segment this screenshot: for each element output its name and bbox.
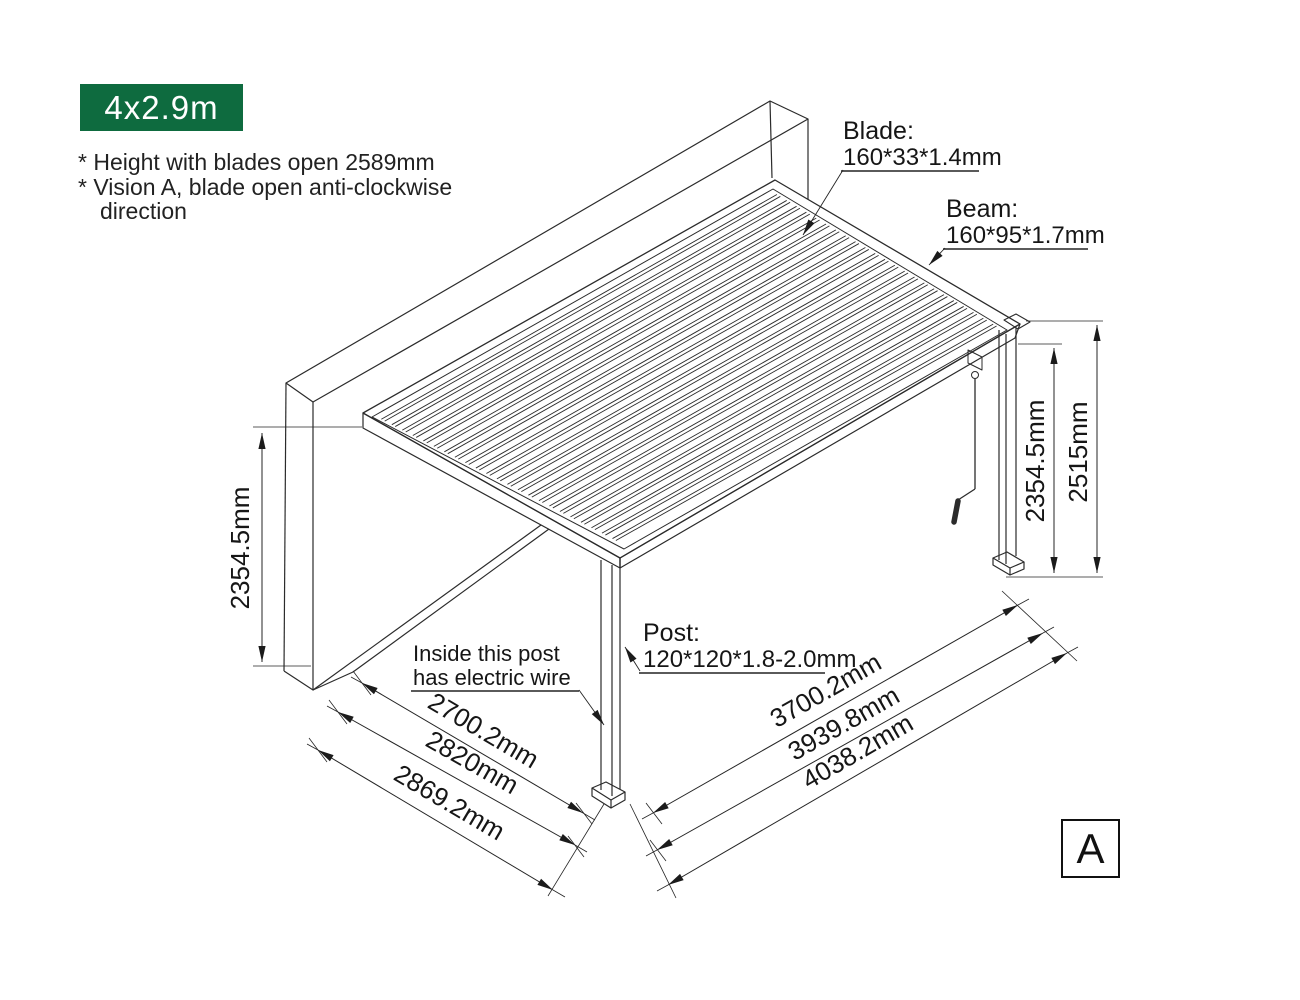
dim-line-depth-mid bbox=[338, 712, 575, 845]
front-beam-face bbox=[620, 324, 1020, 568]
foot-extension-left bbox=[548, 804, 604, 896]
post-leader bbox=[625, 647, 640, 671]
electric-wire-note-line1: Inside this post bbox=[413, 641, 560, 666]
louver-blade-line bbox=[385, 196, 781, 421]
louver-blade-line bbox=[616, 326, 997, 540]
louver-blade-line bbox=[444, 230, 836, 452]
louver-blade-line bbox=[476, 248, 865, 469]
louver-blade-line bbox=[497, 259, 885, 479]
louver-blade-line bbox=[612, 324, 993, 538]
louver-blade-line bbox=[486, 253, 875, 473]
wall bbox=[284, 101, 808, 690]
louver-blade-line bbox=[602, 318, 983, 533]
blade-callout-spec: 160*33*1.4mm bbox=[843, 144, 1002, 171]
louver-blade-line bbox=[392, 200, 787, 424]
dim-total-height: 2515mm bbox=[1063, 401, 1093, 502]
louver-blade-line bbox=[413, 212, 807, 435]
louver-blade-line bbox=[490, 255, 879, 475]
electric-wire-note-line2: has electric wire bbox=[413, 665, 571, 690]
electric-leader bbox=[579, 690, 604, 725]
louver-blade-line bbox=[458, 238, 849, 459]
louver-blade-line bbox=[434, 224, 826, 446]
dim-post-height: 2354.5mm bbox=[1020, 400, 1050, 523]
drawing-texts: Blade: 160*33*1.4mm Beam: 160*95*1.7mm P… bbox=[225, 117, 1105, 846]
louver-blade-line bbox=[402, 206, 796, 430]
post-callout-spec: 120*120*1.8-2.0mm bbox=[643, 646, 856, 673]
louver-blade-line bbox=[469, 244, 859, 465]
post-callout-title: Post: bbox=[643, 619, 700, 647]
louver-blade-line bbox=[455, 236, 846, 457]
wall-left-cap bbox=[284, 402, 313, 690]
louver-blade-line bbox=[465, 242, 855, 463]
louver-blade-line bbox=[479, 249, 868, 470]
blade-callout-title: Blade: bbox=[843, 117, 914, 145]
right-post-foot bbox=[993, 552, 1024, 568]
beam-callout-spec: 160*95*1.7mm bbox=[946, 222, 1105, 249]
leader-lines bbox=[579, 170, 945, 725]
louver-blade-line bbox=[395, 202, 790, 426]
wall-top-face bbox=[286, 101, 808, 402]
beam-callout-title: Beam: bbox=[946, 195, 1018, 223]
dim-wall-height: 2354.5mm bbox=[225, 487, 255, 610]
view-marker-box: A bbox=[1061, 819, 1120, 878]
dim-line-width-inner bbox=[653, 605, 1018, 813]
louver-blade-line bbox=[448, 232, 840, 454]
louver-blade-line bbox=[511, 267, 898, 486]
louver-blade-line bbox=[574, 302, 957, 518]
louver-blade-line bbox=[500, 261, 888, 481]
foot-extension-right bbox=[630, 804, 676, 898]
louver-blade-line bbox=[584, 308, 967, 524]
wall-left-outer-edge bbox=[284, 383, 286, 671]
crank-handle-grip bbox=[954, 501, 958, 522]
louver-blade-line bbox=[595, 314, 977, 529]
louver-blade-line bbox=[605, 320, 986, 535]
louver-blade-line bbox=[381, 195, 777, 420]
crank-loop bbox=[972, 372, 979, 379]
louver-blade-line bbox=[423, 218, 816, 441]
beam-leader bbox=[929, 248, 945, 265]
view-marker-letter: A bbox=[1076, 825, 1104, 873]
louvered-roof bbox=[363, 180, 1030, 568]
dim-line-width-outer bbox=[668, 653, 1067, 885]
foot-extension-fan bbox=[1002, 591, 1077, 661]
wall-bottom-cap-edge bbox=[313, 672, 353, 690]
crank-arm bbox=[958, 489, 975, 500]
